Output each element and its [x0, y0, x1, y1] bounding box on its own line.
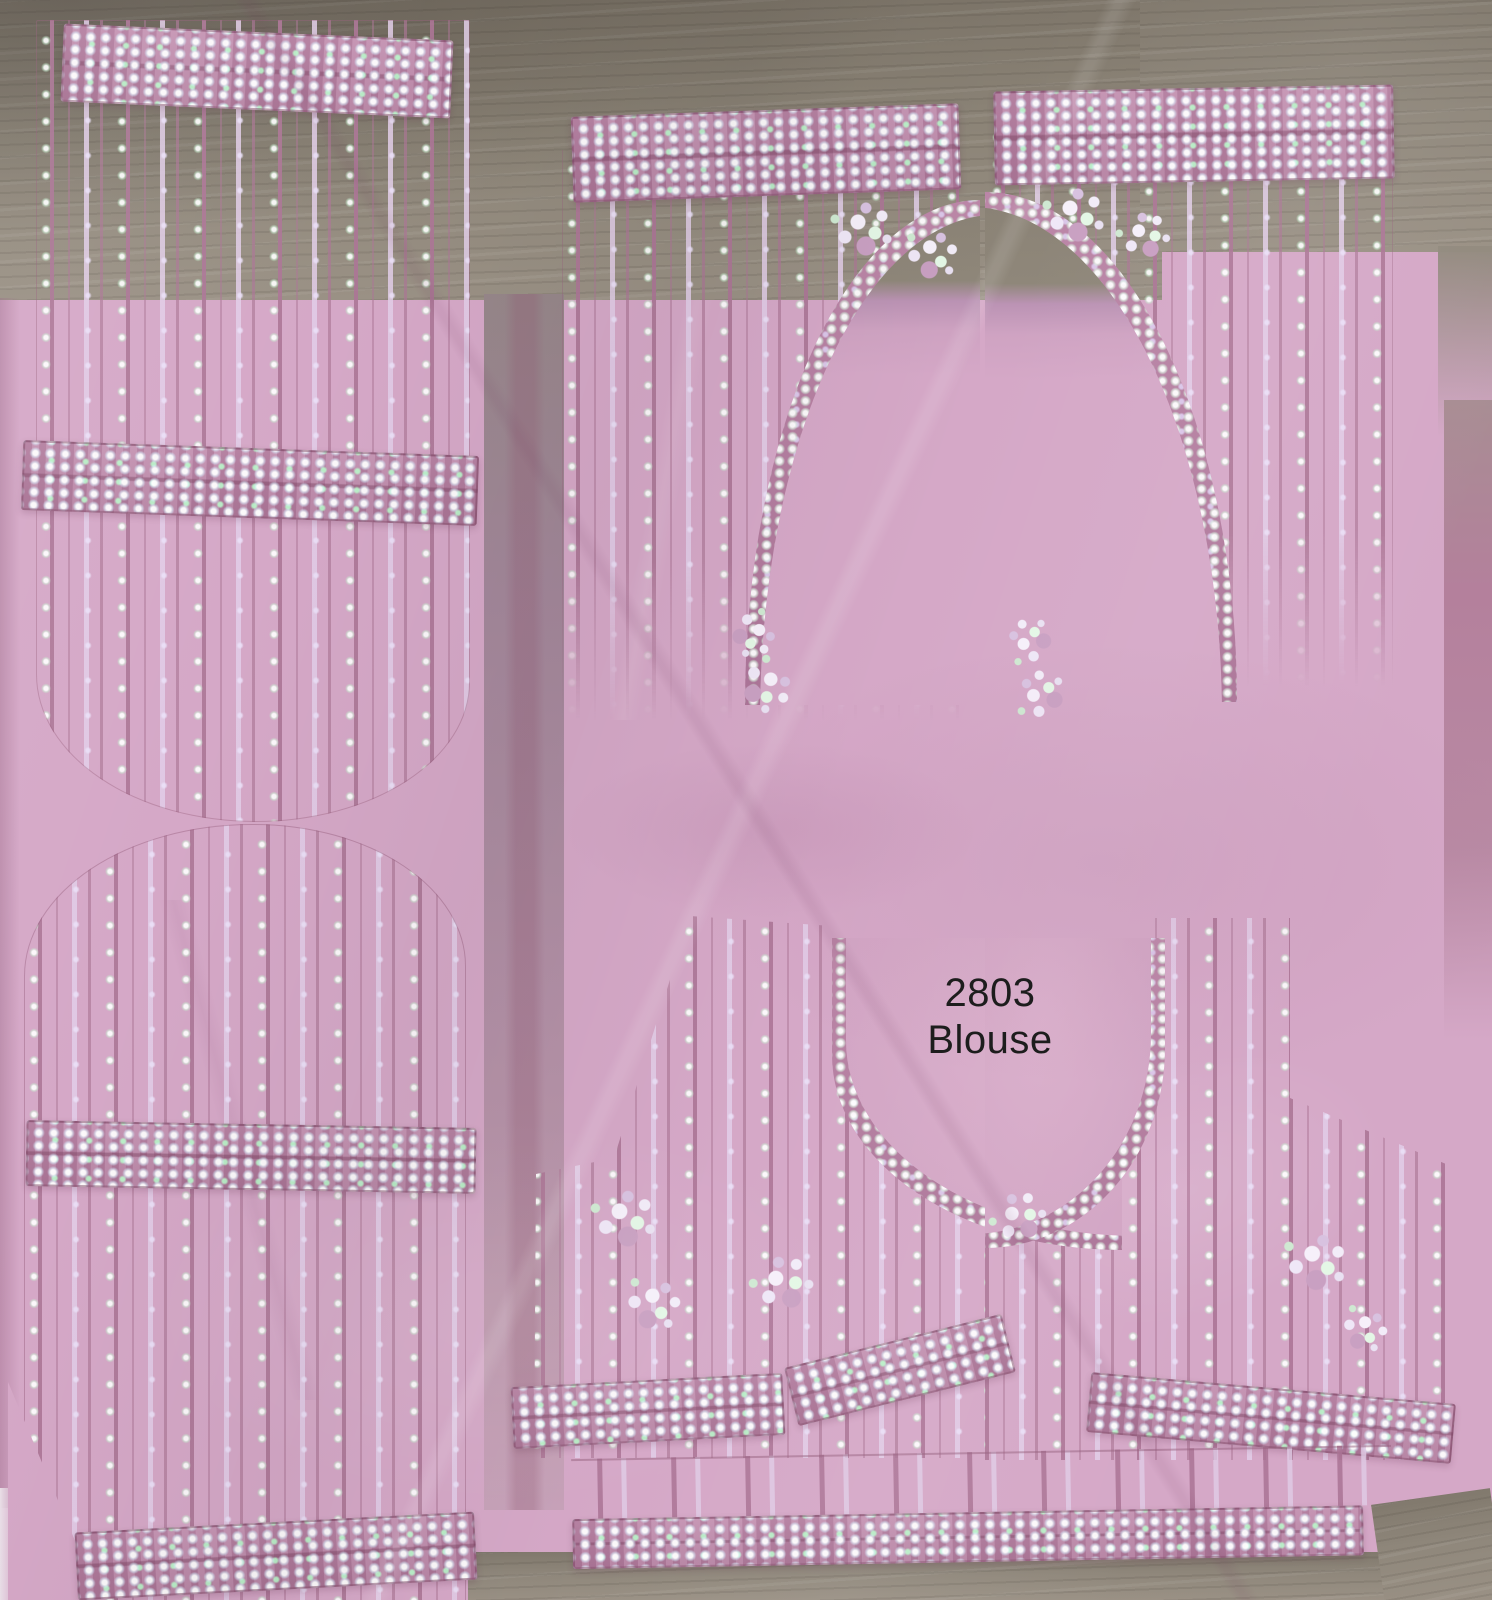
- design-code-text: 2803: [875, 970, 1105, 1017]
- sleeve-piece-top-left: [36, 20, 470, 822]
- fabric-fold-right-edge: [1444, 400, 1492, 1040]
- embroidered-blouse-fabric-photo: 2803 Blouse: [0, 0, 1492, 1600]
- sequin-border-band-back-right: [993, 85, 1395, 186]
- design-number-label: 2803 Blouse: [875, 970, 1105, 1064]
- sleeve-piece-bottom-left: [24, 824, 466, 1600]
- sequin-border-band-back-left: [571, 103, 962, 202]
- sequin-flower-motif: [580, 1184, 681, 1268]
- fabric-crease: [560, 740, 980, 920]
- sequin-border-band-sleeve2-mid: [25, 1120, 476, 1194]
- design-name-text: Blouse: [875, 1017, 1105, 1064]
- fabric-fold-left-edge: [0, 298, 20, 1508]
- border-strip-piece: [571, 1441, 1393, 1569]
